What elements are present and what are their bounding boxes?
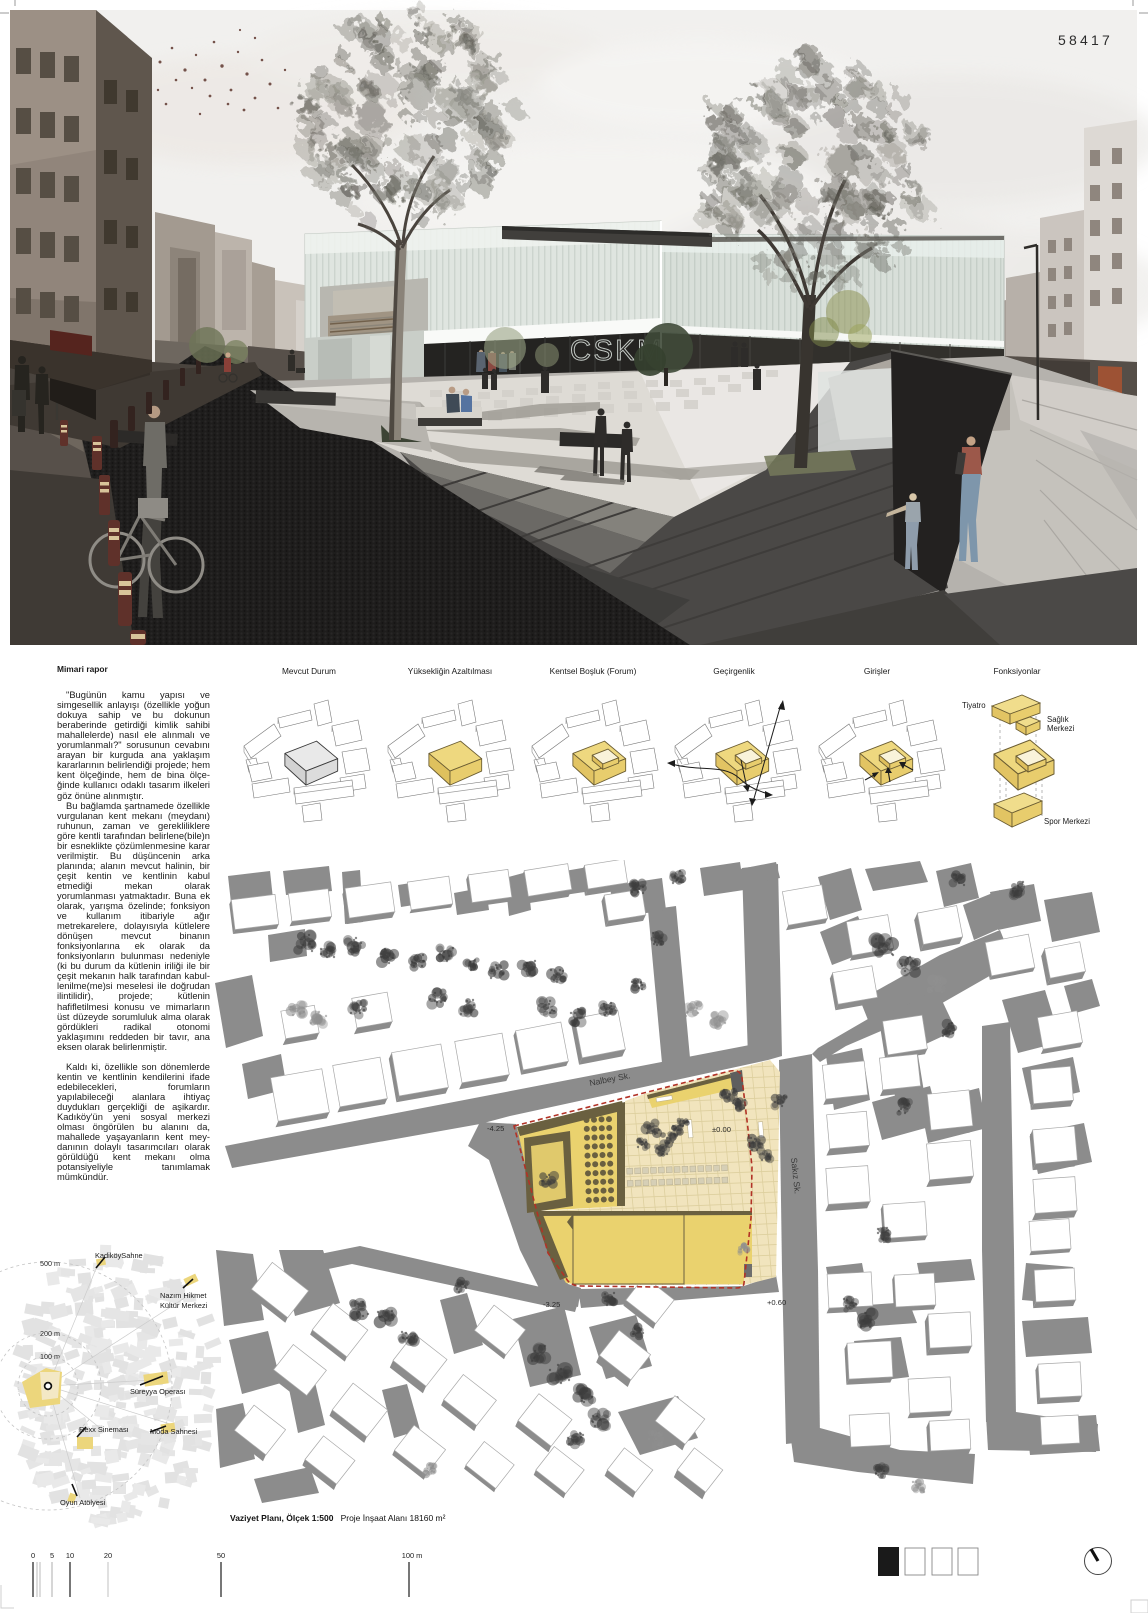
svg-text:-4.25: -4.25 [487,1124,504,1133]
svg-text:Sağlık: Sağlık [1047,715,1069,724]
svg-text:Rexx Sineması: Rexx Sineması [79,1425,129,1434]
svg-text:200 m: 200 m [40,1329,60,1338]
svg-text:20: 20 [104,1551,112,1560]
svg-text:Süreyya Operası: Süreyya Operası [130,1387,185,1396]
svg-text:Nazım Hikmet: Nazım Hikmet [160,1291,206,1300]
svg-text:10: 10 [66,1551,74,1560]
svg-text:50: 50 [217,1551,225,1560]
svg-text:KadiköySahne: KadiköySahne [95,1251,143,1260]
svg-text:Oyun Atölyesi: Oyun Atölyesi [60,1498,106,1507]
svg-text:-3.25: -3.25 [543,1300,560,1309]
svg-text:Moda Sahnesi: Moda Sahnesi [150,1427,198,1436]
svg-text:500 m: 500 m [40,1259,60,1268]
svg-text:Merkezi: Merkezi [1047,724,1075,733]
svg-text:100 m: 100 m [40,1352,60,1361]
svg-text:5: 5 [50,1551,54,1560]
svg-text:Spor Merkezi: Spor Merkezi [1044,817,1090,826]
svg-text:Kültür Merkezi: Kültür Merkezi [160,1301,208,1310]
svg-text:0: 0 [31,1551,35,1560]
svg-text:100 m: 100 m [402,1551,423,1560]
svg-text:+0.60: +0.60 [767,1298,786,1307]
svg-text:58417: 58417 [1058,32,1113,48]
svg-text:Tiyatro: Tiyatro [962,701,986,710]
svg-text:±0.00: ±0.00 [712,1125,731,1134]
